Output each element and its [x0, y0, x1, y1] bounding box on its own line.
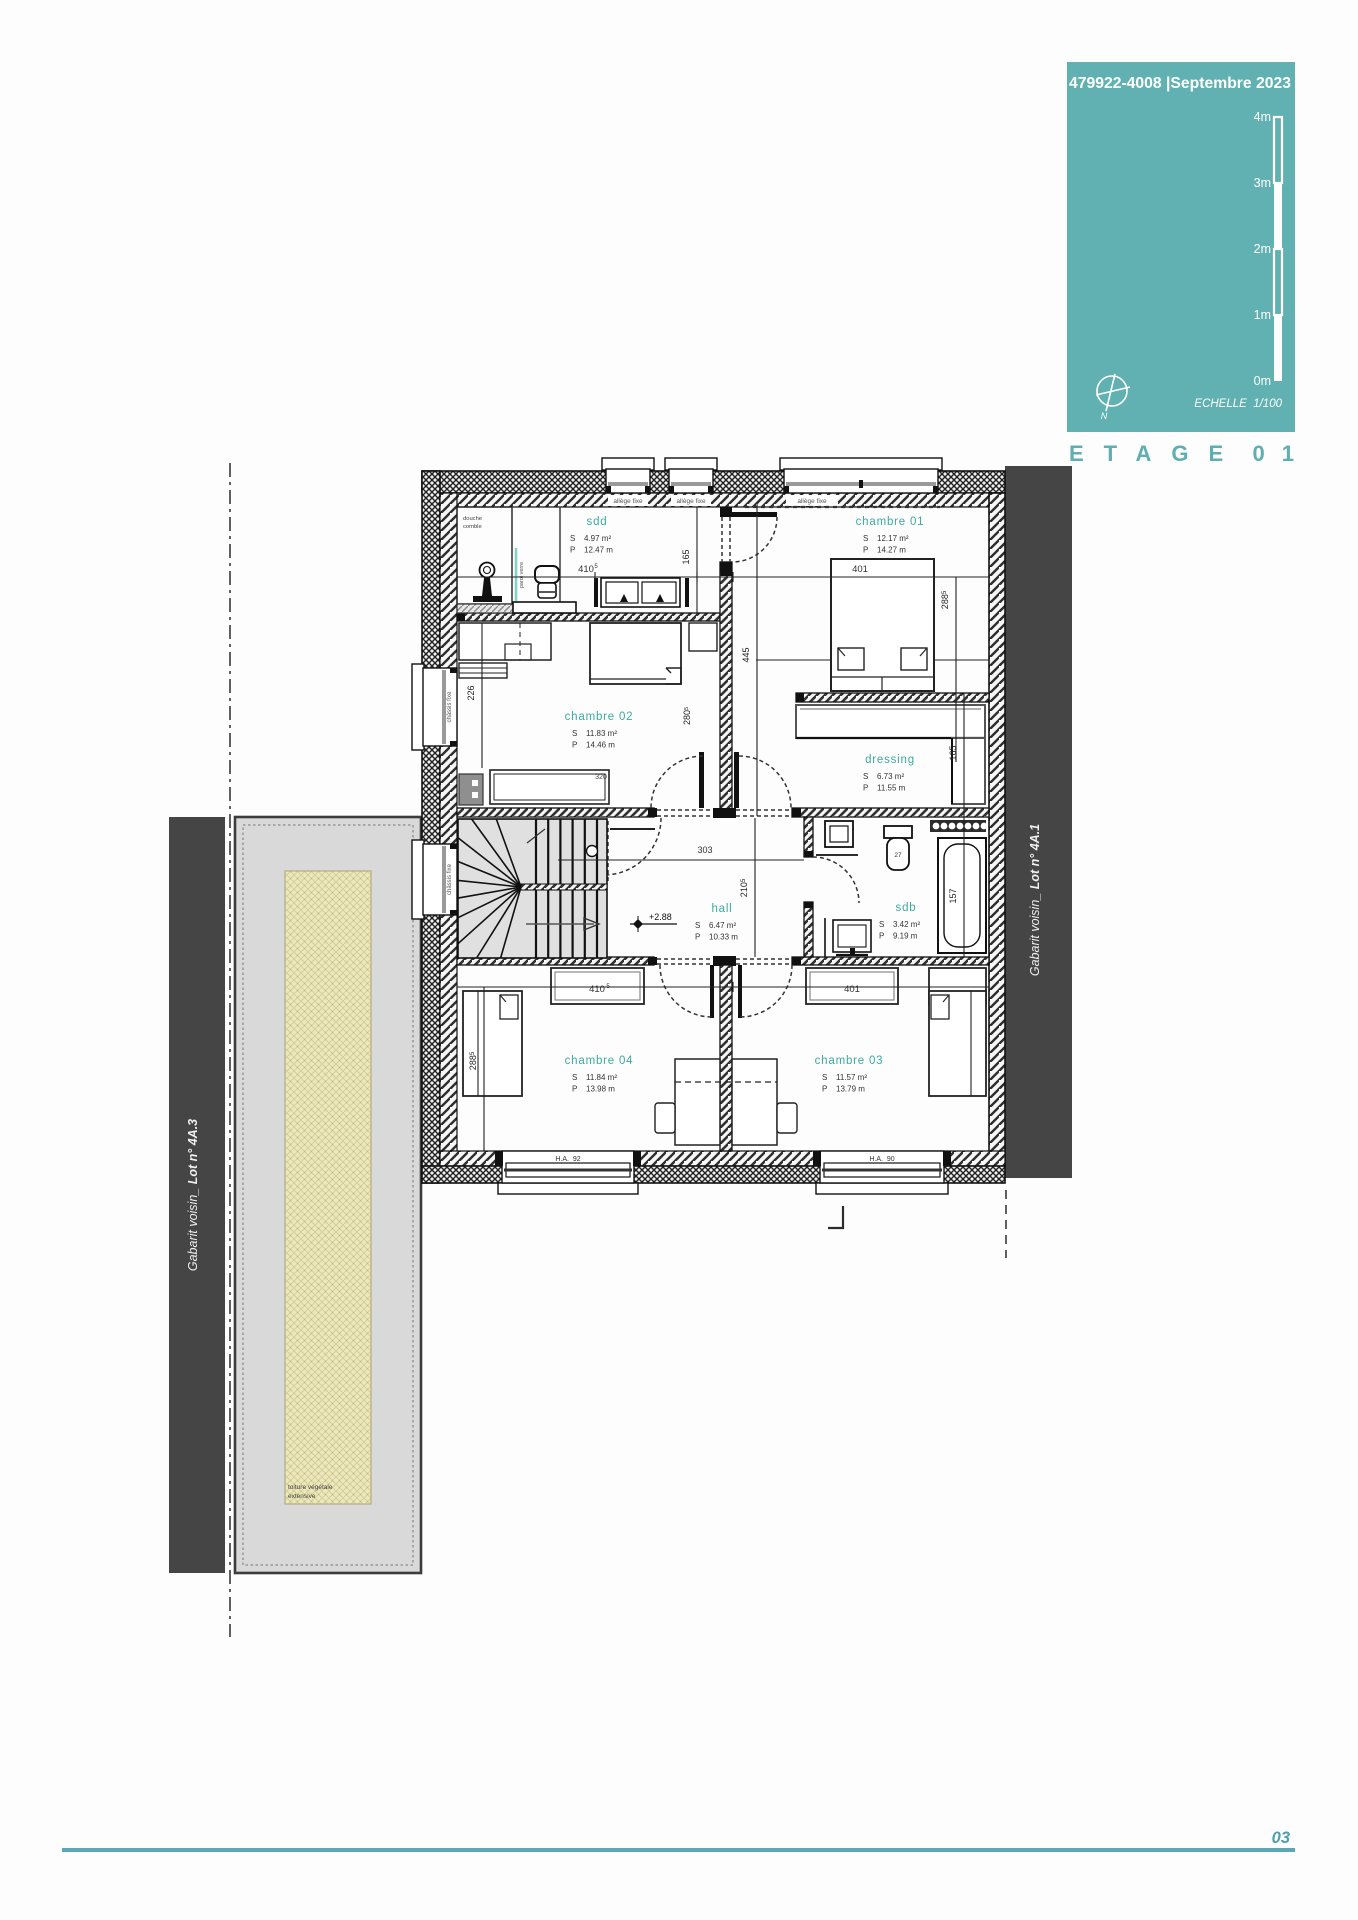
- svg-text:sdb: sdb: [896, 902, 917, 914]
- svg-text:03: 03: [1272, 1829, 1290, 1847]
- svg-text:11.84 m²: 11.84 m²: [586, 1073, 617, 1082]
- svg-text:Gabarit voisin_ Lot n° 4A.1: Gabarit voisin_ Lot n° 4A.1: [1028, 824, 1042, 976]
- svg-text:S: S: [695, 921, 700, 930]
- svg-text:01: 01: [1253, 441, 1311, 466]
- svg-text:401: 401: [852, 564, 868, 575]
- svg-text:9.19 m: 9.19 m: [893, 932, 918, 941]
- svg-text:13.79 m: 13.79 m: [836, 1085, 865, 1094]
- svg-text:N: N: [1101, 411, 1108, 421]
- svg-text:3.42 m²: 3.42 m²: [893, 920, 920, 929]
- svg-text:chambre 01: chambre 01: [856, 516, 925, 528]
- svg-text:paroi verre: paroi verre: [519, 562, 525, 588]
- svg-text:6.47 m²: 6.47 m²: [709, 921, 736, 930]
- svg-text:allège fixe: allège fixe: [676, 498, 706, 505]
- svg-text:479922-4008 |Septembre 2023: 479922-4008 |Septembre 2023: [1069, 75, 1291, 92]
- svg-text:hall: hall: [711, 903, 732, 915]
- svg-text:chambre 04: chambre 04: [565, 1055, 634, 1067]
- svg-text:chambre 03: chambre 03: [815, 1055, 884, 1067]
- svg-text:P: P: [863, 784, 868, 793]
- svg-text:14.46 m: 14.46 m: [586, 741, 615, 750]
- svg-text:toiture végétale: toiture végétale: [288, 1484, 333, 1491]
- svg-text:H.A. 92: H.A. 92: [555, 1156, 580, 1163]
- svg-text:S: S: [879, 920, 884, 929]
- svg-text:12.47 m: 12.47 m: [584, 546, 613, 555]
- svg-text:douche: douche: [463, 516, 482, 522]
- svg-text:S: S: [863, 534, 868, 543]
- svg-text:P: P: [572, 741, 577, 750]
- svg-text:226: 226: [466, 685, 476, 700]
- svg-text:320: 320: [595, 774, 607, 781]
- svg-text:chambre 02: chambre 02: [565, 711, 634, 723]
- svg-text:3m: 3m: [1254, 176, 1271, 190]
- svg-text:S: S: [572, 1073, 577, 1082]
- svg-text:dressing: dressing: [865, 754, 915, 766]
- svg-text:12.17 m²: 12.17 m²: [877, 534, 909, 543]
- svg-text:S: S: [570, 534, 575, 543]
- svg-text:13.98 m: 13.98 m: [586, 1085, 615, 1094]
- svg-text:extensive: extensive: [288, 1493, 316, 1500]
- svg-text:P: P: [570, 546, 575, 555]
- svg-text:Gabarit voisin_ Lot n° 4A.3: Gabarit voisin_ Lot n° 4A.3: [186, 1119, 200, 1271]
- svg-text:303: 303: [697, 845, 712, 855]
- svg-text:14.27 m: 14.27 m: [877, 546, 906, 555]
- svg-text:P: P: [879, 932, 884, 941]
- svg-text:10.33 m: 10.33 m: [709, 933, 738, 942]
- svg-text:+2.88: +2.88: [649, 912, 672, 922]
- svg-text:27: 27: [894, 852, 902, 859]
- svg-text:P: P: [863, 546, 868, 555]
- svg-text:S: S: [863, 772, 868, 781]
- svg-text:allège fixe: allège fixe: [613, 498, 643, 505]
- svg-text:0m: 0m: [1254, 374, 1271, 388]
- svg-text:P: P: [572, 1085, 577, 1094]
- svg-text:châssis fixe: châssis fixe: [447, 691, 453, 723]
- svg-text:H.A. 90: H.A. 90: [869, 1156, 894, 1163]
- svg-text:410: 410: [578, 564, 594, 575]
- svg-text:165: 165: [948, 745, 958, 760]
- svg-text:410: 410: [589, 984, 605, 995]
- svg-text:445: 445: [741, 647, 751, 662]
- svg-text:ETAGE: ETAGE: [1069, 441, 1243, 466]
- svg-text:S: S: [572, 729, 577, 738]
- svg-text:allège fixe: allège fixe: [797, 498, 827, 505]
- svg-text:ECHELLE 1/100: ECHELLE 1/100: [1194, 398, 1282, 410]
- svg-text:comble: comble: [463, 524, 482, 530]
- svg-text:châssis fixe: châssis fixe: [447, 863, 453, 895]
- svg-text:4m: 4m: [1254, 110, 1271, 124]
- svg-text:11.57 m²: 11.57 m²: [836, 1073, 867, 1082]
- svg-text:P: P: [822, 1085, 827, 1094]
- svg-text:157: 157: [948, 888, 958, 903]
- svg-text:2m: 2m: [1254, 242, 1271, 256]
- svg-text:11.55 m: 11.55 m: [877, 784, 906, 793]
- svg-text:1m: 1m: [1254, 308, 1271, 322]
- svg-text:P: P: [695, 933, 700, 942]
- svg-text:11.83 m²: 11.83 m²: [586, 729, 617, 738]
- svg-text:165: 165: [681, 549, 691, 564]
- svg-text:4.97 m²: 4.97 m²: [584, 534, 611, 543]
- svg-text:6.73 m²: 6.73 m²: [877, 772, 904, 781]
- svg-text:sdd: sdd: [587, 516, 608, 528]
- svg-text:S: S: [822, 1073, 827, 1082]
- svg-text:401: 401: [844, 984, 860, 995]
